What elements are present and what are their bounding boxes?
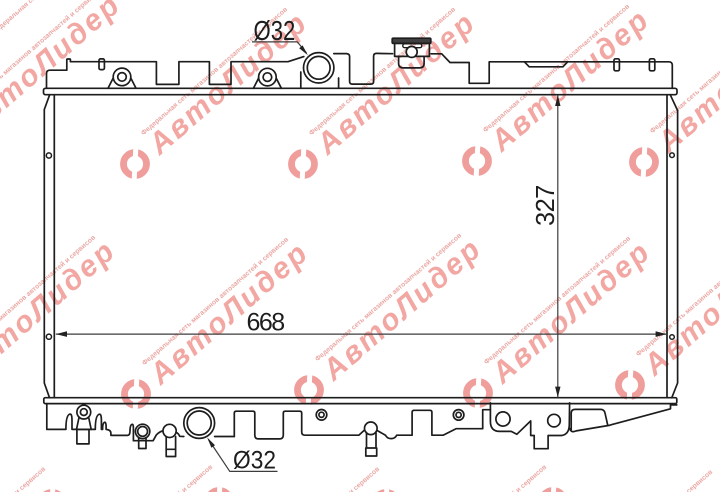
svg-text:Ø32: Ø32 bbox=[233, 447, 276, 475]
svg-text:АвтоЛидер: АвтоЛидер bbox=[310, 6, 483, 162]
svg-text:АвтоЛидер: АвтоЛидер bbox=[0, 234, 122, 390]
svg-text:АвтоЛидер: АвтоЛидер bbox=[484, 3, 657, 159]
svg-text:327: 327 bbox=[532, 185, 560, 226]
svg-text:АвтоЛидер: АвтоЛидер bbox=[143, 236, 316, 392]
svg-text:АвтоЛидер: АвтоЛидер bbox=[316, 232, 489, 388]
svg-text:Федеральная сеть магазинов авт: Федеральная сеть магазинов автозапчастей… bbox=[0, 465, 47, 492]
svg-text:Федеральная сеть магазинов авт: Федеральная сеть магазинов автозапчастей… bbox=[65, 463, 215, 492]
svg-text:668: 668 bbox=[247, 309, 285, 337]
svg-text:Федеральная сеть магазинов авт: Федеральная сеть магазинов автозапчастей… bbox=[399, 463, 549, 492]
svg-text:Федеральная сеть магазинов авт: Федеральная сеть магазинов автозапчастей… bbox=[565, 468, 715, 492]
svg-text:Ø32: Ø32 bbox=[254, 16, 296, 47]
